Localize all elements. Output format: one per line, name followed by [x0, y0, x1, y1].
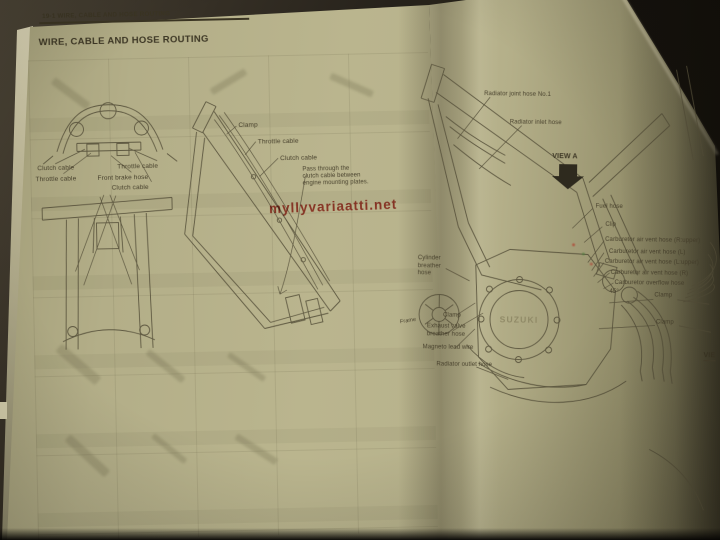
label-carb-air-vent-l-upper: Carburetor air vent hose (L:upper)	[605, 259, 699, 267]
label-45-degrees: 45°	[609, 289, 618, 296]
engine-logo: SUZUKI	[500, 314, 539, 325]
right-page-content: SUZUKI Radiator joint hose No.1 Radiator…	[0, 0, 720, 540]
label-magneto-lead-wire: Magneto lead wire	[423, 344, 474, 352]
label-clamp-upper: Clamp	[654, 292, 672, 299]
bottom-shadow	[0, 528, 720, 540]
label-clamp-lower: Clamp	[656, 319, 674, 326]
color-noise	[572, 243, 575, 246]
label-carb-air-vent-l: Carburetor air vent hose (L)	[609, 249, 686, 257]
label-fuel-hose: Fuel hose	[596, 204, 623, 211]
label-view-b-partial: VIE	[703, 352, 715, 361]
color-noise	[582, 252, 585, 255]
label-carb-overflow-hose: Carburetor overflow hose	[614, 280, 684, 288]
label-cylinder-breather-hose: Cylinder breather hose	[418, 255, 441, 278]
label-radiator-joint-hose: Radiator joint hose No.1	[484, 91, 551, 99]
color-noise	[590, 263, 593, 266]
label-clamp-left: Clamp	[443, 313, 461, 320]
label-radiator-outlet-hose: Radiator outlet hose	[436, 361, 492, 369]
label-carb-air-vent-r: Carburetor air vent hose (R)	[611, 270, 689, 278]
label-clip: Clip	[605, 222, 616, 229]
label-carb-air-vent-r-upper: Carburetor air vent hose (R:upper)	[605, 237, 700, 245]
label-radiator-inlet-hose: Radiator inlet hose	[510, 119, 562, 127]
label-view-a: VIEW A	[552, 153, 577, 162]
photo-of-open-service-manual: 19-1 WIRE, CABLE AND HOSE ROUTING WIRE, …	[0, 0, 720, 540]
view-a-arrow-icon	[552, 164, 584, 189]
label-exhaust-valve-breather-hose: Exhaust valve breather hose	[427, 323, 466, 339]
